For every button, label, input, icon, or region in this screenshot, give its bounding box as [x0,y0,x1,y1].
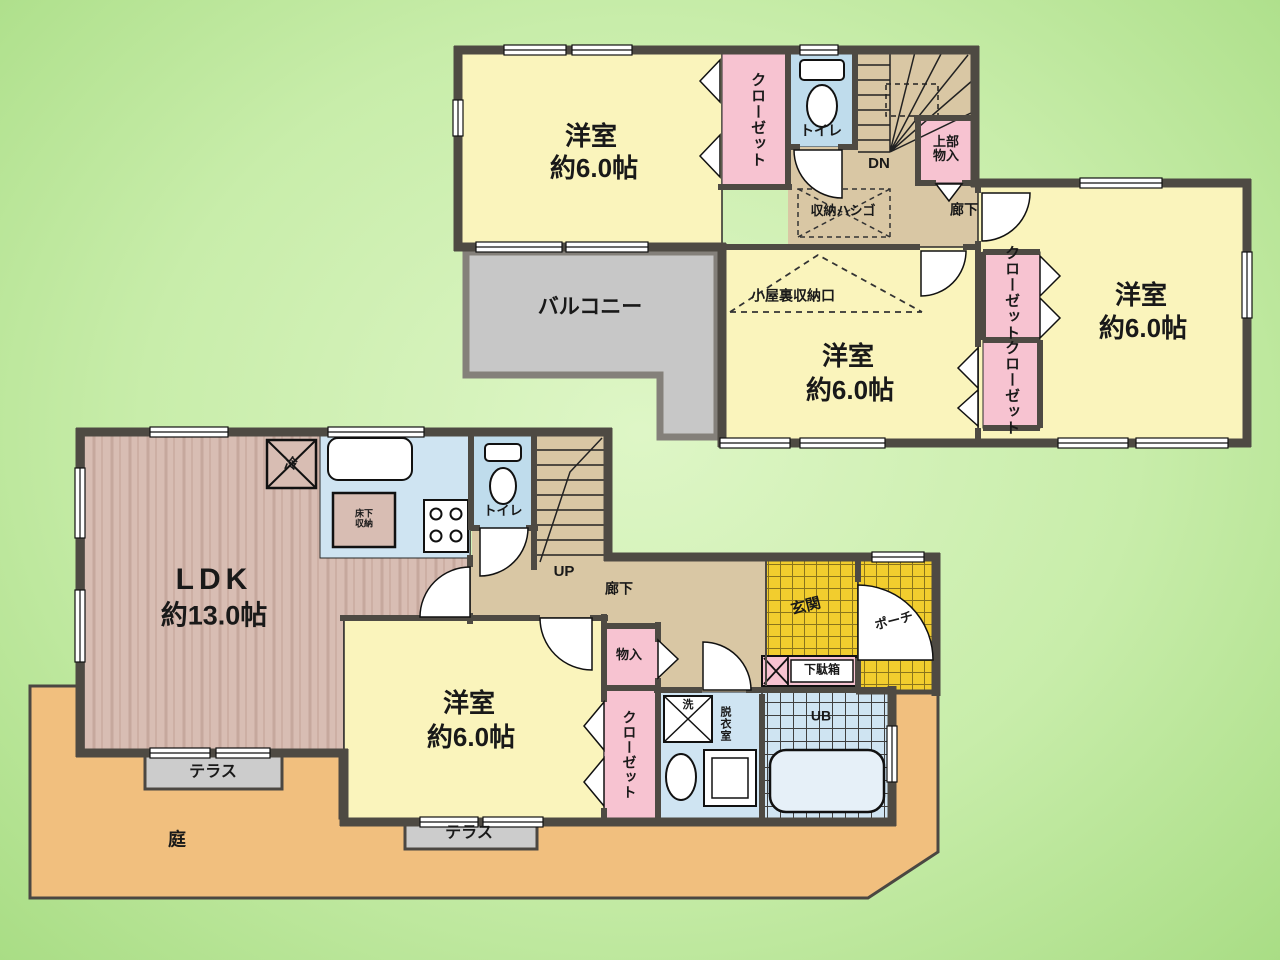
stairs-up-label: UP [554,564,575,580]
ldk-size: 約13.0帖 [161,601,268,630]
room-e-size: 約6.0帖 [1099,314,1187,342]
floor-plan-drawing [0,0,1280,960]
washbasin [666,754,696,800]
dressing-room-label: 脱衣室 [718,706,730,742]
closet-1f-label: クローゼット [621,710,636,800]
attic-access-label: 小屋裏収納口 [751,288,835,303]
storage-ladder-label: 収納ハシゴ [810,204,875,218]
room-center-name: 洋室 [822,342,874,370]
ldk-name: LDK [176,564,253,596]
room-nw-name: 洋室 [565,122,617,150]
bedroom-name: 洋室 [443,689,495,717]
room-center-size: 約6.0帖 [806,376,894,404]
balcony-floor [466,252,717,437]
toilet-1f-label: トイレ [483,504,522,518]
fridge-label: 冷 [284,456,298,471]
bedroom-size: 約6.0帖 [427,723,515,751]
stairs-down-label: DN [868,156,890,172]
floor-storage-label: 床下収納 [352,509,376,528]
washer-label: 洗 [683,700,694,712]
hallway-2f-label: 廊下 [950,202,978,217]
terrace-right-label: テラス [445,824,493,841]
terrace-left-label: テラス [189,763,237,780]
floor-plan: 洋室 約6.0帖 クローゼット トイレ DN 上部物入 収納ハシゴ 廊下 小屋裏… [0,0,1280,960]
toilet-2f-label: トイレ [800,123,842,138]
hallway-1f-label: 廊下 [605,581,633,596]
closet-nw-label: クローゼット [749,72,765,168]
garden-label: 庭 [168,830,186,849]
storage-1f-label: 物入 [616,648,642,662]
room-e-name: 洋室 [1115,281,1167,309]
closet-e1-label: クローゼット [1003,245,1019,341]
closet-e2-label: クローゼット [1003,340,1019,436]
bathtub [770,750,884,812]
room-nw-size: 約6.0帖 [550,154,638,182]
shoe-box-label: 下駄箱 [804,664,840,677]
unit-bath-label: UB [811,708,831,723]
upper-storage-label: 上部物入 [929,135,963,163]
balcony-label: バルコニー [538,297,643,320]
